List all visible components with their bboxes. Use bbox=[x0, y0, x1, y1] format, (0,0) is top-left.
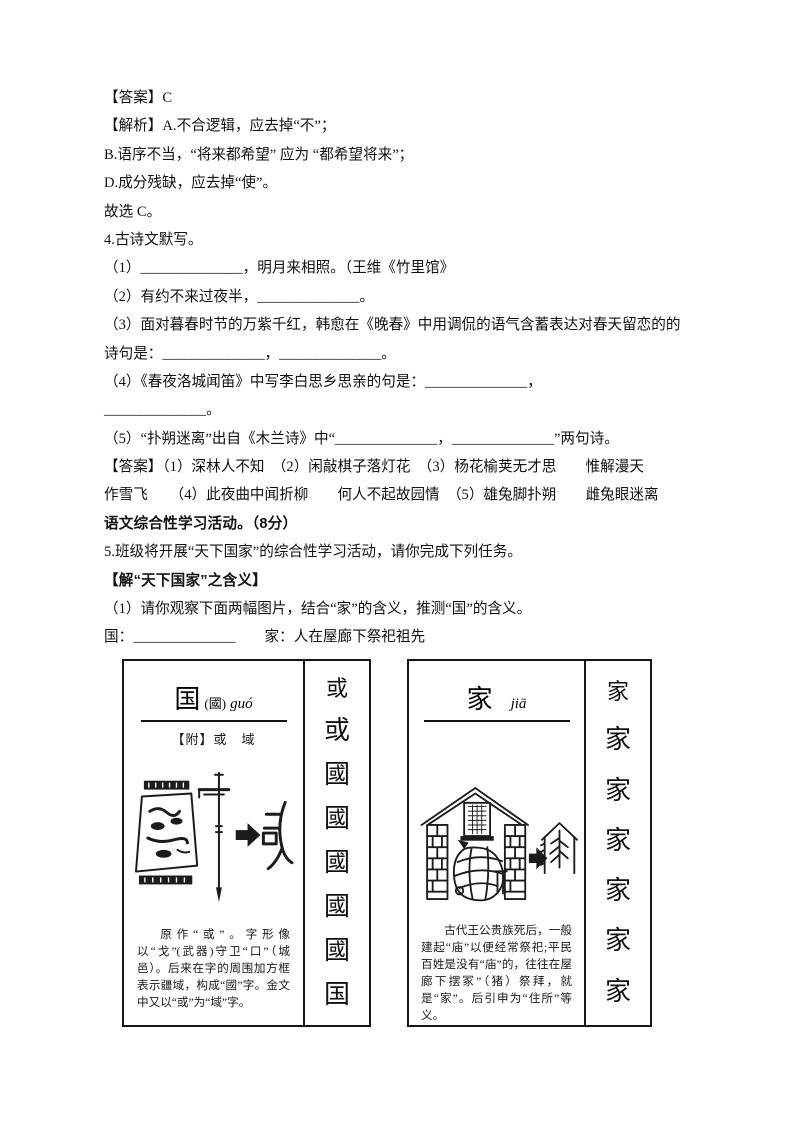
guo-strip-glyph-clerical: 國 bbox=[324, 850, 350, 876]
activity-section-header: 语文综合性学习活动。（8分） bbox=[104, 510, 698, 538]
tablet-top-band bbox=[143, 781, 188, 790]
tablet-bottom-band bbox=[138, 876, 191, 885]
guo-strip-glyph-oracle: 或 bbox=[326, 678, 348, 700]
guo-script-strip: 或 或 國 國 國 國 國 国 bbox=[305, 661, 369, 1025]
guo-card-title: 国 (國) guó bbox=[174, 687, 252, 713]
guo-strip-glyph-regular: 國 bbox=[324, 894, 350, 920]
jia-strip-glyph-oracle: 家 bbox=[607, 681, 629, 703]
q4-item3-line2: 诗句是：______________，______________。 bbox=[104, 340, 698, 368]
jia-strip-glyph-seal: 家 bbox=[605, 778, 631, 804]
q4-title: 4.古诗文默写。 bbox=[104, 226, 698, 254]
q3-analysis-b: B.语序不当，“将来都希望” 应为 “都希望将来”； bbox=[104, 141, 698, 169]
guo-strip-glyph-bronze2: 國 bbox=[324, 762, 350, 788]
q3-conclusion: 故选 C。 bbox=[104, 198, 698, 226]
q4-item4-line1: （4）《春夜洛城闻笛》中写李白思乡思亲的句是：______________， bbox=[104, 368, 698, 396]
jia-headword: 家 bbox=[467, 687, 493, 713]
jia-card-title: 家 jiā bbox=[467, 687, 527, 713]
q5-subhead: 【解“天下国家”之含义】 bbox=[104, 567, 698, 595]
jia-strip-glyph-clerical: 家 bbox=[605, 828, 631, 854]
oracle-jia-glyph bbox=[540, 823, 576, 873]
jia-evolution-illustration bbox=[416, 781, 578, 906]
guo-strip-glyph-cursive: 國 bbox=[324, 938, 350, 964]
jia-strip-glyph-regular: 家 bbox=[605, 878, 631, 904]
guo-card: 国 (國) guó 【附】或 域 bbox=[122, 659, 371, 1027]
evolution-arrow-icon bbox=[235, 823, 260, 847]
q4-item2: （2）有约不来过夜半，______________。 bbox=[104, 283, 698, 311]
jia-strip-glyph-cursive: 家 bbox=[605, 928, 631, 954]
guo-pinyin: guó bbox=[230, 696, 253, 713]
guo-title-rule bbox=[141, 720, 287, 723]
document-body: 【答案】C 【解析】A.不合逻辑，应去掉“不”； B.语序不当，“将来都希望” … bbox=[0, 0, 794, 1027]
exam-page: { "q3": { "answer_line": "【答案】C", "analy… bbox=[0, 0, 794, 1123]
q4-item1: （1）______________，明月来相照。（王维《竹里馆》 bbox=[104, 254, 698, 282]
map-tablet-drawing bbox=[135, 794, 196, 872]
q5-intro: 5.班级将开展“天下国家”的综合性学习活动，请你完成下列任务。 bbox=[104, 538, 698, 566]
jia-card-main: 家 jiā bbox=[409, 661, 586, 1025]
guo-variants: 【附】或 域 bbox=[171, 729, 255, 748]
jia-script-strip: 家 家 家 家 家 家 家 bbox=[586, 661, 650, 1025]
q3-analysis-d: D.成分残缺，应去掉“使”。 bbox=[104, 169, 698, 197]
jia-pinyin: jiā bbox=[511, 696, 527, 713]
guo-headword: 国 bbox=[174, 687, 200, 713]
dictionary-cards: 国 (國) guó 【附】或 域 bbox=[122, 659, 698, 1027]
window-lattice bbox=[460, 803, 493, 841]
guo-strip-glyph-bronze: 或 bbox=[324, 718, 350, 744]
q4-item5: （5）“扑朔迷离”出自《木兰诗》中“______________，_______… bbox=[104, 425, 698, 453]
q3-analysis-a: 【解析】A.不合逻辑，应去掉“不”； bbox=[104, 112, 698, 140]
guo-strip-glyph-seal: 國 bbox=[324, 806, 350, 832]
brick-house-drawing bbox=[421, 788, 527, 900]
q5-fill-line: 国：______________ 家：人在屋廊下祭祀祖先 bbox=[104, 623, 698, 651]
guo-card-main: 国 (國) guó 【附】或 域 bbox=[124, 661, 305, 1025]
q4-item3-line1: （3）面对暮春时节的万紫千红，韩愈在《晚春》中用调侃的语气含蓄表达对春天留恋的的 bbox=[104, 311, 698, 339]
jia-title-rule bbox=[424, 720, 570, 723]
q4-answer-line2: 作雪飞 （4）此夜曲中闻折柳 何人不起故园情 （5）雄兔脚扑朔 雌兔眼迷离 bbox=[104, 481, 698, 509]
bound-pig-drawing bbox=[453, 840, 503, 901]
ancient-huo-glyph bbox=[263, 803, 292, 869]
halberd-drawing bbox=[199, 773, 229, 902]
jia-caption: 古代王公贵族死后，一般建起“庙”以便经常祭祀;平民百姓是没有“庙”的，往往在屋廊… bbox=[409, 922, 584, 1024]
guo-caption: 原作“或”。字形像以“戈”(武器)守卫“口”（城邑）。后来在字的周围加方框表示疆… bbox=[124, 926, 303, 1011]
q4-answer-line1: 【答案】（1）深林人不知 （2）闲敲棋子落灯花 （3）杨花榆荚无才思 惟解漫天 bbox=[104, 453, 698, 481]
jia-card: 家 jiā bbox=[407, 659, 652, 1027]
q5-task1: （1）请你观察下面两幅图片，结合“家”的含义，推测“国”的含义。 bbox=[104, 595, 698, 623]
guo-strip-glyph-simplified: 国 bbox=[324, 982, 350, 1008]
q3-answer-line: 【答案】C bbox=[104, 84, 698, 112]
guo-traditional: (國) bbox=[204, 693, 226, 712]
guo-evolution-illustration bbox=[134, 766, 294, 908]
jia-strip-glyph-cursive2: 家 bbox=[605, 979, 631, 1005]
jia-strip-glyph-bronze: 家 bbox=[605, 727, 631, 753]
q4-item4-line2: ______________。 bbox=[104, 396, 698, 424]
